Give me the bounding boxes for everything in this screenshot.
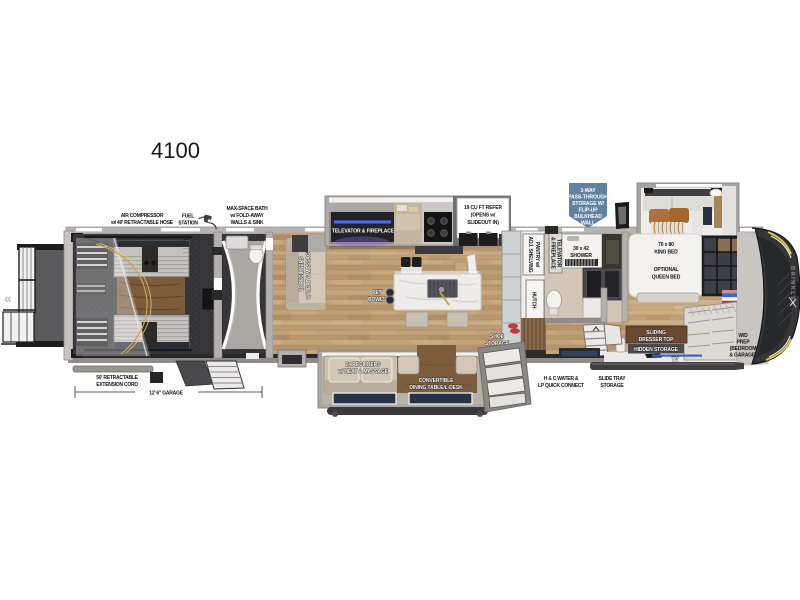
svg-text:w/ HEAT & MASSAGE: w/ HEAT & MASSAGE <box>337 369 389 375</box>
svg-text:STORAGE W/: STORAGE W/ <box>572 201 604 207</box>
svg-text:EXTENSION CORD: EXTENSION CORD <box>96 382 138 388</box>
svg-text:QUEEN BED: QUEEN BED <box>652 275 681 281</box>
svg-text:19 CU FT REFER: 19 CU FT REFER <box>464 205 502 211</box>
svg-text:PET: PET <box>372 290 381 296</box>
svg-text:SHOE: SHOE <box>490 334 505 340</box>
svg-text:w/ FOLD-AWAY: w/ FOLD-AWAY <box>229 213 264 219</box>
svg-text:OPTIONAL: OPTIONAL <box>654 267 679 273</box>
svg-text:& FIREPLACE: & FIREPLACE <box>550 237 556 270</box>
svg-text:50' RETRACTABLE: 50' RETRACTABLE <box>96 375 138 381</box>
svg-text:KING BED: KING BED <box>654 250 678 256</box>
svg-text:SHOWER: SHOWER <box>570 253 592 259</box>
svg-text:2x RECLINERS: 2x RECLINERS <box>299 256 305 291</box>
svg-text:ADJ. SHELVING: ADJ. SHELVING <box>527 236 533 272</box>
svg-text:& GARAGE): & GARAGE) <box>729 353 757 359</box>
svg-text:PANTRY w/: PANTRY w/ <box>534 242 540 268</box>
svg-text:WALL: WALL <box>581 221 595 227</box>
svg-text:2x RECLINERS: 2x RECLINERS <box>346 362 381 368</box>
svg-text:HIDDEN STORAGE: HIDDEN STORAGE <box>634 347 679 353</box>
svg-text:«: « <box>4 290 12 306</box>
svg-text:(BEDROOM: (BEDROOM <box>730 346 757 352</box>
svg-text:WALLS & SINK: WALLS & SINK <box>231 220 264 226</box>
svg-text:3-WAY: 3-WAY <box>580 188 596 194</box>
svg-text:H & C WATER &: H & C WATER & <box>544 376 579 382</box>
svg-text:STORAGE: STORAGE <box>601 383 625 389</box>
svg-text:30 x 42: 30 x 42 <box>573 246 589 252</box>
svg-text:w/ 40' RETRACTABLE HOSE: w/ 40' RETRACTABLE HOSE <box>110 220 174 226</box>
svg-text:w/ HEAT & MASSAGE: w/ HEAT & MASSAGE <box>306 248 312 300</box>
svg-text:AIR COMPRESSOR: AIR COMPRESSOR <box>121 213 164 219</box>
svg-text:SLIDING: SLIDING <box>646 330 666 336</box>
svg-text:W/D: W/D <box>738 333 748 339</box>
svg-text:HUTCH: HUTCH <box>531 292 537 309</box>
svg-text:MAX-SPACE BATH: MAX-SPACE BATH <box>226 206 268 212</box>
svg-text:SLIDEOUT IN): SLIDEOUT IN) <box>467 220 499 226</box>
svg-text:BULKHEAD: BULKHEAD <box>574 214 602 220</box>
svg-text:70 x 80: 70 x 80 <box>658 242 674 248</box>
svg-text:DRESSER TOP: DRESSER TOP <box>639 337 674 343</box>
svg-text:PREP: PREP <box>736 340 750 346</box>
svg-text:4100: 4100 <box>151 138 200 163</box>
svg-text:FLIP-UP: FLIP-UP <box>578 208 598 214</box>
svg-text:TELEVATOR & FIREPLACE: TELEVATOR & FIREPLACE <box>332 229 395 235</box>
svg-text:BOWLS: BOWLS <box>368 297 387 303</box>
svg-text:FUEL: FUEL <box>182 214 194 220</box>
svg-text:STATION: STATION <box>178 221 198 227</box>
svg-text:CONVERTIBLE: CONVERTIBLE <box>419 378 455 384</box>
svg-text:(OPENS w/: (OPENS w/ <box>471 213 496 219</box>
svg-text:PASS-THROUGH: PASS-THROUGH <box>568 195 608 201</box>
svg-text:DINING TABLE/L-DESK: DINING TABLE/L-DESK <box>409 385 463 391</box>
svg-text:LP QUICK CONNECT: LP QUICK CONNECT <box>538 383 584 389</box>
svg-text:SLIDE TRAY: SLIDE TRAY <box>599 376 627 382</box>
svg-text:12' 6" GARAGE: 12' 6" GARAGE <box>149 391 183 397</box>
